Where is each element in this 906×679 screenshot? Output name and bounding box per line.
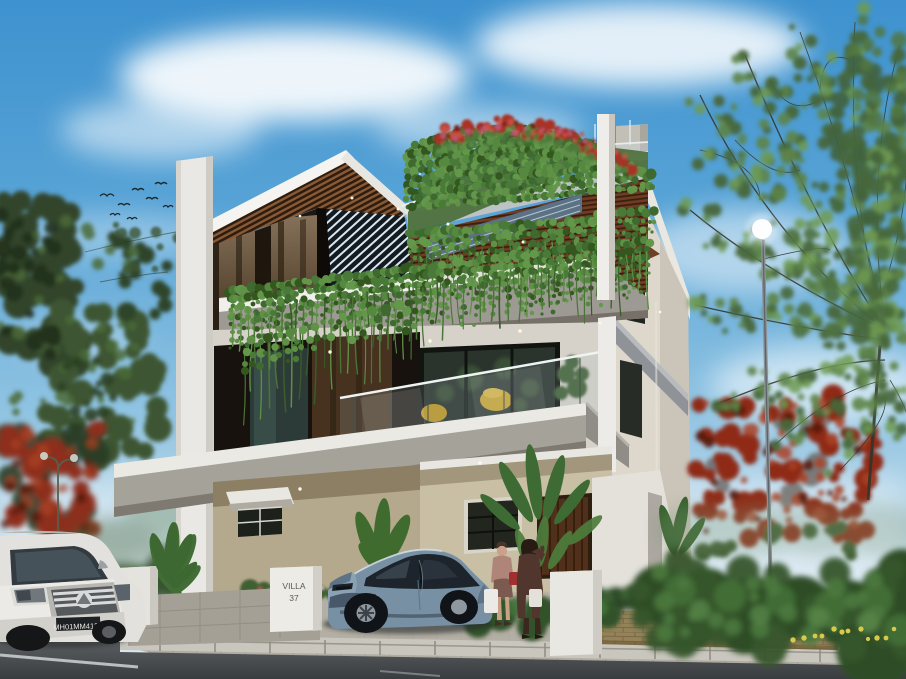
svg-text:37: 37: [289, 593, 299, 603]
svg-text:VILLA: VILLA: [282, 581, 305, 591]
